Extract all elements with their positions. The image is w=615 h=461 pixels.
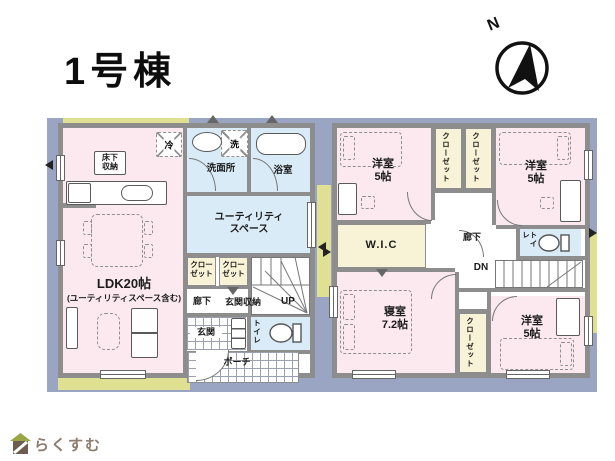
dining-table: [91, 214, 143, 267]
pillow: [343, 294, 355, 320]
house-logo-icon: [10, 433, 31, 454]
toilet-2f-label: トイレ: [522, 231, 537, 255]
closet-2f-a-label: クローゼット: [442, 132, 450, 188]
desk: [560, 180, 581, 222]
stairs-down-icon: [495, 260, 583, 288]
window: [584, 150, 593, 180]
window: [56, 155, 65, 181]
entrance-storage-label: 玄関収納: [218, 297, 268, 308]
washing-machine-icon: 洗: [221, 130, 248, 157]
desk: [338, 183, 357, 215]
wall: [337, 268, 455, 272]
vent-marker: [266, 115, 278, 123]
vent-marker: [207, 115, 219, 123]
closet-1f-b-label: クロー ゼット: [220, 261, 247, 279]
west-c-label: 洋室 5帖: [502, 315, 562, 341]
wall: [337, 220, 431, 224]
page-title: 1号棟: [64, 40, 176, 95]
wall: [492, 128, 496, 225]
toilet-1f-icon: [268, 321, 304, 345]
stairs-down-label: DN: [468, 262, 494, 274]
window: [329, 286, 338, 318]
window: [56, 240, 65, 266]
ldk-label: LDK20帖: [60, 276, 188, 291]
west-a-label: 洋室 5帖: [352, 158, 414, 184]
cabinet: [131, 308, 158, 358]
toilet-bowl-icon: [268, 321, 304, 345]
arrow-marker: [45, 160, 53, 170]
low-table: [97, 313, 120, 350]
door-marker: [227, 287, 239, 295]
pillow: [560, 342, 572, 366]
washer-label: 洗: [229, 137, 240, 150]
chair: [144, 244, 153, 258]
site-strip-bottom: [58, 378, 190, 390]
stairs-up-label: UP: [274, 296, 302, 308]
stove-icon: [68, 183, 91, 203]
logo: [10, 433, 31, 454]
sink-icon: [121, 185, 153, 201]
chair: [83, 244, 92, 258]
toilet-1f-label: トイレ: [253, 319, 261, 349]
tv-board: [66, 307, 78, 349]
closet-1f-a-label: クロー ゼット: [188, 261, 215, 279]
wall: [459, 288, 585, 292]
chair: [144, 221, 153, 235]
stool: [361, 196, 375, 209]
washbasin-icon: [192, 132, 222, 152]
fridge-icon: 冷: [156, 132, 182, 157]
logo-text: らくすむ: [34, 434, 102, 455]
pillow: [343, 136, 355, 160]
arrow-marker: [589, 228, 597, 238]
wall: [183, 128, 187, 373]
wic-label: W.I.C: [337, 239, 426, 252]
wall: [183, 286, 249, 289]
master-bedroom-label: 寝室 7.2帖: [362, 306, 428, 332]
toilet-2f-icon: [536, 232, 572, 254]
stool: [540, 197, 554, 209]
wall: [431, 189, 492, 193]
hallway-1f-label: 廊下: [189, 296, 215, 307]
arrow-marker: [323, 247, 331, 257]
wall: [183, 192, 314, 196]
window: [307, 202, 316, 248]
compass: [490, 28, 556, 100]
hallway-2f-label: 廊下: [458, 232, 486, 243]
wall: [516, 229, 520, 256]
underfloor-storage-label: 床下 収納: [94, 153, 126, 172]
porch-label: ポーチ: [216, 357, 258, 368]
pillow: [557, 136, 569, 160]
wall: [459, 309, 487, 313]
compass-icon: [490, 28, 556, 100]
window: [584, 316, 593, 346]
window: [506, 370, 550, 379]
bathroom-label: 浴室: [266, 165, 300, 176]
closet-2f-c-label: クローゼット: [466, 317, 474, 371]
window: [100, 370, 146, 379]
stairs-down: [495, 260, 583, 288]
wall: [462, 128, 465, 189]
wall: [247, 317, 251, 350]
door-marker: [376, 269, 388, 277]
entrance-label: 玄関: [190, 327, 222, 338]
chair: [83, 221, 92, 235]
wall: [496, 225, 585, 229]
washroom-label: 洗面所: [196, 163, 246, 174]
closet-2f-b-label: クローゼット: [472, 132, 480, 188]
pillow: [343, 324, 355, 350]
site-strip-gap: [317, 185, 331, 297]
shoe-cabinet: [231, 318, 246, 349]
west-b-label: 洋室 5帖: [506, 160, 566, 186]
floorplan-page: 1号棟 N: [0, 0, 615, 461]
toilet-bowl-icon: [536, 232, 572, 254]
window: [352, 370, 396, 379]
utility-label: ユーティリティ スペース: [204, 212, 294, 236]
bathtub-icon: [256, 133, 306, 155]
wall: [487, 292, 491, 373]
fridge-label: 冷: [163, 138, 174, 151]
ldk-note-label: (ユーティリティスペース含む): [54, 293, 194, 303]
